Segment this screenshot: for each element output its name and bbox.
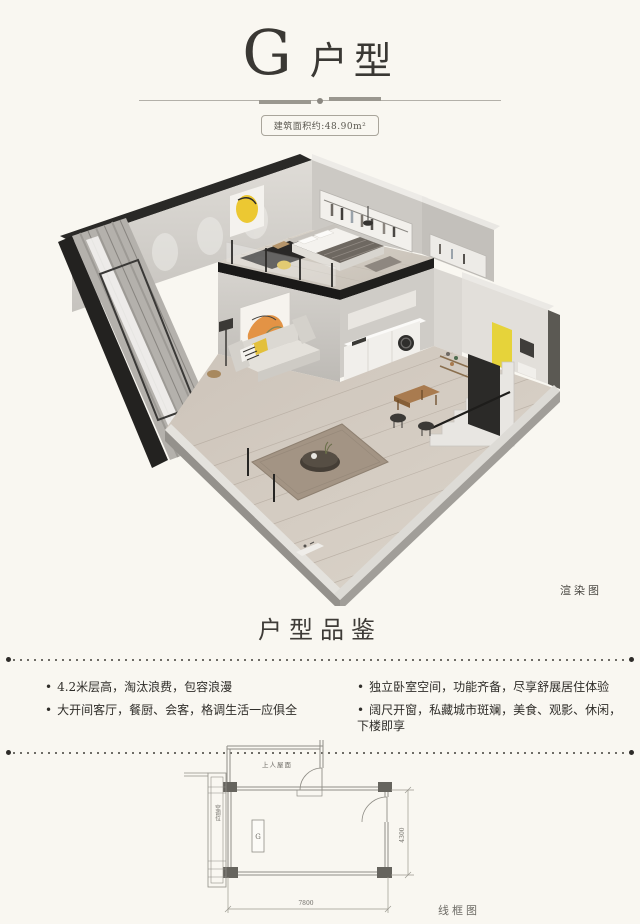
equipment-label: 空调位 <box>214 804 221 822</box>
feature-item: 大开间客厅，餐厨、会客，格调生活一应俱全 <box>45 702 357 718</box>
page-title: G 户型 <box>0 22 640 84</box>
stair-railing-panel <box>468 354 500 436</box>
bullets-left-column: 4.2米层高，淘汰浪费，包容浪漫 大开间客厅，餐厨、会客，格调生活一应俱全 <box>45 672 357 742</box>
roof-terrace-label: 上人屋面 <box>262 760 292 769</box>
render-caption: 渲染图 <box>560 582 602 598</box>
divider-bar-right <box>329 97 381 101</box>
page-header: G 户型 建筑面积约:48.90m² <box>0 22 640 136</box>
divider-bar-left <box>259 100 311 104</box>
floorplan-caption: 线框图 <box>438 903 480 917</box>
feature-item: 阔尺开窗，私藏城市斑斓，美食、观影、休闲，下楼即享 <box>357 702 632 734</box>
dimension-width-label: 7800 <box>298 900 313 907</box>
isometric-apartment-render <box>0 148 640 606</box>
wireframe-floorplan: 空调位 G 上人屋面 4300 7800 线框图 <box>0 733 640 920</box>
dimension-height-label: 4300 <box>399 827 406 842</box>
render-illustration: 渲染图 <box>0 148 640 606</box>
washing-machine-door <box>398 335 414 351</box>
section-title: 户型品鉴 <box>0 610 640 645</box>
dotted-rule-top <box>3 657 637 662</box>
feature-item: 4.2米层高，淘汰浪费，包容浪漫 <box>45 679 357 695</box>
area-badge: 建筑面积约:48.90m² <box>261 115 379 136</box>
feature-item: 独立卧室空间，功能齐备，尽享舒展居住体验 <box>357 679 632 695</box>
divider-dot-icon <box>317 98 323 104</box>
unit-letter: G <box>242 22 292 84</box>
bullets-right-column: 独立卧室空间，功能齐备，尽享舒展居住体验 阔尺开窗，私藏城市斑斓，美食、观影、休… <box>357 672 632 742</box>
unit-word: 户型 <box>310 42 398 80</box>
unit-marker-label: G <box>255 833 261 841</box>
floorplan-diagram: 空调位 G 上人屋面 4300 7800 线框图 <box>0 733 640 920</box>
title-divider <box>139 96 501 106</box>
structural-columns <box>223 782 392 878</box>
